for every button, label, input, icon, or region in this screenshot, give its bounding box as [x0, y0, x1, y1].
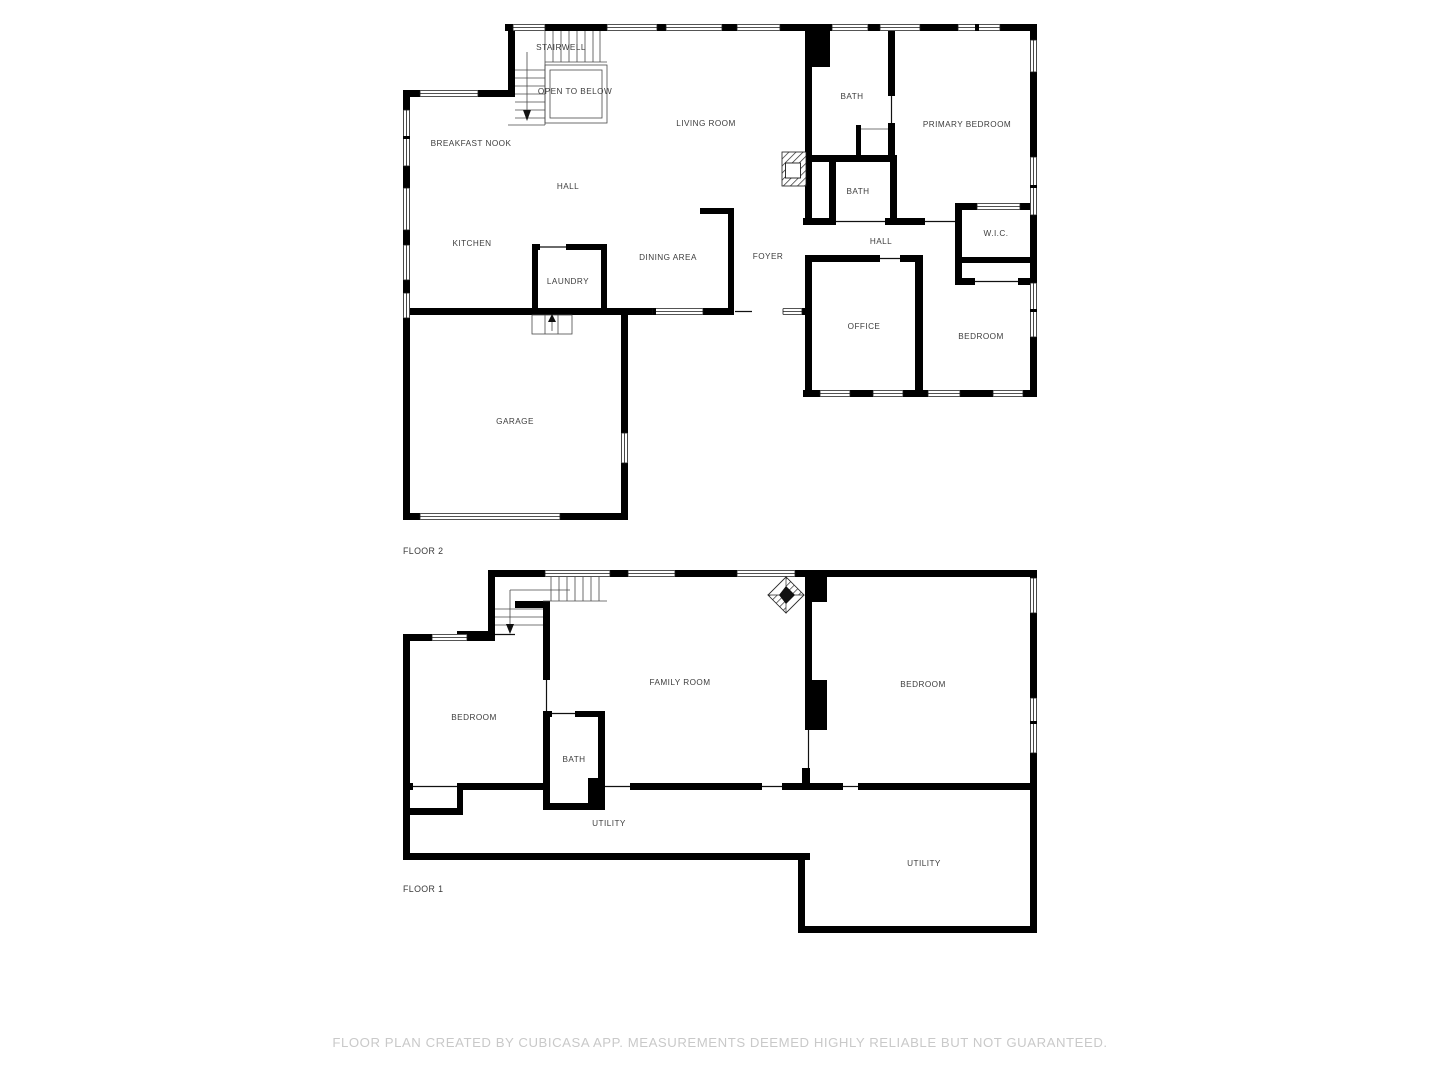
- room-label-utility-west: UTILITY: [592, 819, 626, 828]
- room-label-bedroom-west: BEDROOM: [451, 713, 496, 722]
- floor2-plan: STAIRWELL OPEN TO BELOW LIVING ROOM BATH…: [403, 24, 1037, 556]
- room-label-living-room: LIVING ROOM: [676, 119, 736, 128]
- room-label-bedroom-f2: BEDROOM: [958, 332, 1003, 341]
- room-label-family-room: FAMILY ROOM: [649, 678, 710, 687]
- room-label-bedroom-east: BEDROOM: [900, 680, 945, 689]
- room-label-garage: GARAGE: [496, 417, 534, 426]
- room-label-open-to-below: OPEN TO BELOW: [538, 87, 612, 96]
- disclaimer-text: FLOOR PLAN CREATED BY CUBICASA APP. MEAS…: [332, 1035, 1107, 1050]
- floor-plan-canvas: STAIRWELL OPEN TO BELOW LIVING ROOM BATH…: [0, 0, 1440, 1080]
- room-label-dining-area: DINING AREA: [639, 253, 697, 262]
- room-label-stairwell: STAIRWELL: [536, 43, 586, 52]
- room-label-kitchen: KITCHEN: [452, 239, 491, 248]
- room-label-bath-f1: BATH: [562, 755, 585, 764]
- room-label-wic: W.I.C.: [984, 229, 1009, 238]
- floor1-plan: BEDROOM FAMILY ROOM BEDROOM BATH UTILITY…: [403, 570, 1037, 933]
- compass-icon: [768, 577, 804, 613]
- room-label-office: OFFICE: [848, 322, 881, 331]
- floor2-caption: FLOOR 2: [403, 546, 443, 556]
- room-label-hall-west: HALL: [557, 182, 579, 191]
- floor1-caption: FLOOR 1: [403, 884, 443, 894]
- room-label-hall-east: HALL: [870, 237, 892, 246]
- room-label-foyer: FOYER: [753, 252, 783, 261]
- floor1-walls: [403, 570, 1037, 933]
- room-label-utility-east: UTILITY: [907, 859, 941, 868]
- room-label-laundry: LAUNDRY: [547, 277, 589, 286]
- room-label-breakfast-nook: BREAKFAST NOOK: [431, 139, 512, 148]
- room-label-bath-lower: BATH: [846, 187, 869, 196]
- fireplace-icon: [782, 152, 806, 186]
- floor2-walls: [403, 24, 1037, 520]
- room-label-primary-bedroom: PRIMARY BEDROOM: [923, 120, 1011, 129]
- room-label-bath-upper: BATH: [840, 92, 863, 101]
